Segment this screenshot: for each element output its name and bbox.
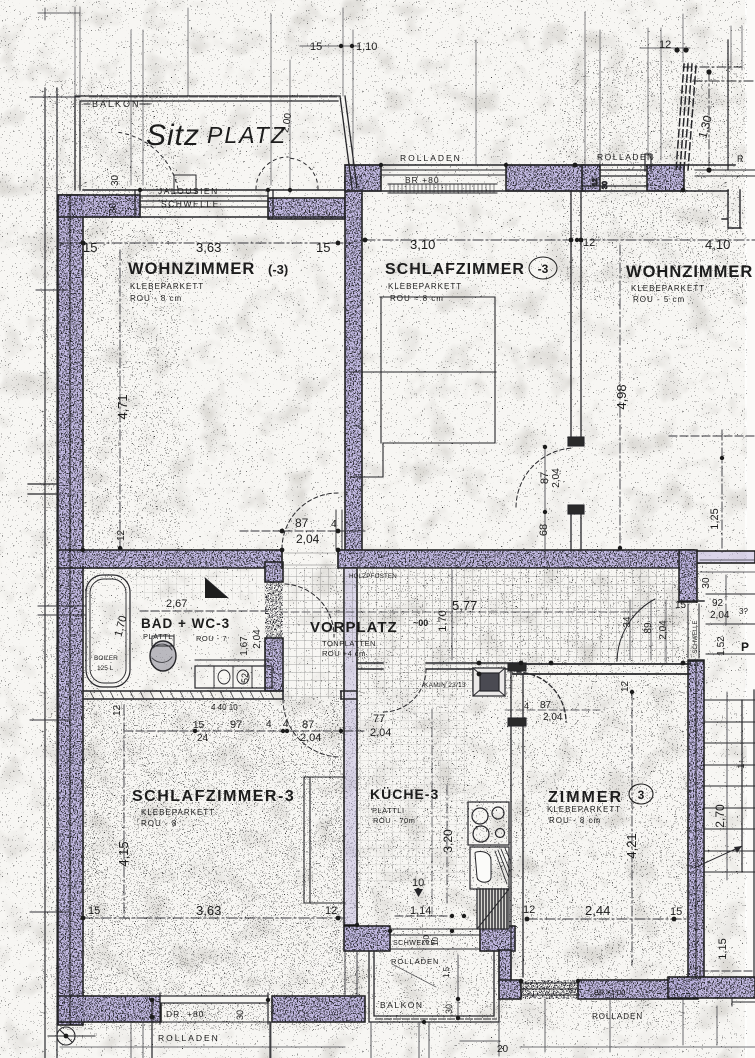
svg-text:3: 3: [638, 788, 645, 802]
svg-text:4,10: 4,10: [705, 237, 730, 252]
svg-text:30: 30: [602, 181, 609, 189]
svg-text:SCHLAFZIMMER-3: SCHLAFZIMMER-3: [132, 788, 295, 805]
svg-text:4,71: 4,71: [115, 394, 130, 419]
svg-text:ROU - 5 cm: ROU - 5 cm: [633, 295, 685, 304]
svg-text:PLATTLI: PLATTLI: [372, 806, 405, 815]
svg-text:30: 30: [701, 577, 712, 589]
svg-text:ROU - 7: ROU - 7: [196, 634, 227, 643]
svg-text:1,52: 1,52: [716, 636, 727, 656]
svg-text:KAMIN 23/13: KAMIN 23/13: [424, 682, 466, 689]
svg-text:ROLLADEN: ROLLADEN: [592, 1012, 643, 1021]
svg-text:(-3): (-3): [268, 262, 288, 277]
svg-text:BR +1,00: BR +1,00: [594, 988, 625, 997]
svg-text:3?: 3?: [739, 607, 748, 616]
svg-text:1,10: 1,10: [356, 41, 377, 53]
svg-text:VORPLATZ: VORPLATZ: [310, 619, 398, 636]
svg-text:12: 12: [620, 680, 631, 692]
svg-text:SCHWELLE: SCHWELLE: [693, 620, 699, 653]
svg-text:12: 12: [592, 178, 599, 186]
svg-text:3,10: 3,10: [410, 237, 435, 252]
svg-text:4: 4: [283, 719, 289, 730]
svg-text:KLEBEPARKETT: KLEBEPARKETT: [547, 805, 621, 814]
svg-text:5,77: 5,77: [452, 598, 477, 613]
svg-text:KLEBEPARKETT: KLEBEPARKETT: [631, 284, 705, 293]
svg-text:4,15: 4,15: [116, 841, 131, 866]
svg-text:BR +80: BR +80: [405, 175, 440, 185]
svg-text:30: 30: [422, 935, 431, 944]
svg-text:ROLLADEN: ROLLADEN: [400, 153, 462, 163]
svg-text:12: 12: [523, 904, 535, 916]
svg-text:2,04: 2,04: [710, 610, 730, 621]
svg-text:12: 12: [659, 39, 671, 51]
svg-text:ROU - 8 cm: ROU - 8 cm: [549, 816, 601, 825]
svg-text:KLEBEPARKETT: KLEBEPARKETT: [130, 282, 204, 291]
svg-text:2,04: 2,04: [551, 468, 562, 488]
svg-text:ZIMMER: ZIMMER: [548, 789, 623, 806]
svg-text:2,04: 2,04: [300, 732, 321, 744]
svg-text:2,04: 2,04: [543, 712, 563, 723]
svg-text:2,04: 2,04: [370, 727, 391, 739]
svg-text:52: 52: [240, 673, 250, 683]
svg-text:R: R: [737, 154, 744, 164]
svg-text:1↑: 1↑: [736, 759, 746, 769]
svg-text:BAD + WC-3: BAD + WC-3: [141, 616, 230, 631]
svg-text:4: 4: [524, 701, 529, 711]
svg-text:Sitz: Sitz: [146, 119, 200, 152]
svg-text:SCHLAFZIMMER: SCHLAFZIMMER: [385, 261, 525, 278]
svg-text:12: 12: [325, 905, 337, 917]
svg-text:12: 12: [583, 237, 595, 249]
svg-text:ROU - 70m: ROU - 70m: [373, 816, 415, 825]
svg-text:3,20: 3,20: [441, 829, 455, 853]
svg-text:10: 10: [431, 937, 440, 946]
svg-text:68: 68: [538, 524, 550, 536]
svg-text:125 L: 125 L: [97, 665, 114, 672]
svg-text:10: 10: [412, 877, 424, 889]
svg-text:15: 15: [670, 906, 682, 918]
svg-text:ROLLADEN: ROLLADEN: [597, 152, 655, 162]
svg-text:P: P: [741, 640, 749, 654]
svg-text:2,70: 2,70: [713, 804, 727, 828]
svg-text:ROU ≈ 8 cm: ROU ≈ 8 cm: [390, 294, 444, 303]
svg-text:PLATZ: PLATZ: [207, 122, 287, 148]
svg-text:HOLZPFOSTEN: HOLZPFOSTEN: [349, 573, 397, 580]
svg-text:~00: ~00: [413, 618, 428, 628]
svg-text:30: 30: [235, 1010, 245, 1020]
svg-text:2,67: 2,67: [166, 598, 187, 610]
svg-text:87: 87: [540, 700, 552, 711]
svg-text:34: 34: [622, 616, 633, 628]
svg-text:-3: -3: [538, 262, 549, 276]
svg-text:87: 87: [539, 472, 551, 484]
svg-text:2,04: 2,04: [658, 620, 669, 640]
svg-text:3,63: 3,63: [196, 903, 221, 918]
svg-text:92: 92: [712, 598, 724, 609]
svg-text:ROLLADEN: ROLLADEN: [158, 1033, 220, 1043]
svg-text:4: 4: [266, 719, 272, 730]
svg-text:JALOUSIEN: JALOUSIEN: [158, 186, 219, 196]
svg-text:BOILER: BOILER: [94, 655, 118, 662]
svg-text:KLEBEPARKETT: KLEBEPARKETT: [141, 808, 215, 817]
svg-text:2,44: 2,44: [585, 903, 610, 918]
svg-text:4,21: 4,21: [624, 833, 639, 858]
svg-text:15: 15: [675, 600, 687, 611]
svg-text:15: 15: [83, 240, 97, 255]
svg-text:PLATTLI: PLATTLI: [143, 632, 176, 641]
svg-text:ROU - 8 cm: ROU - 8 cm: [130, 294, 182, 303]
svg-text:KÜCHE-3: KÜCHE-3: [370, 786, 439, 802]
svg-text:24: 24: [197, 733, 209, 744]
svg-text:20: 20: [497, 1044, 509, 1055]
svg-text:30: 30: [110, 174, 121, 186]
svg-text:TONPLATTEN: TONPLATTEN: [322, 639, 376, 648]
svg-text:2,04: 2,04: [252, 629, 263, 649]
svg-text:15: 15: [316, 240, 330, 255]
svg-text:BALKON: BALKON: [380, 1000, 424, 1010]
svg-text:BALKON: BALKON: [92, 99, 141, 109]
svg-text:DR. +80: DR. +80: [166, 1009, 204, 1019]
svg-text:1,70: 1,70: [437, 610, 449, 631]
svg-text:4,98: 4,98: [614, 384, 629, 409]
svg-text:89: 89: [643, 622, 654, 634]
svg-text:ROLLADEN: ROLLADEN: [391, 957, 439, 966]
svg-text:KLEBEPARKETT: KLEBEPARKETT: [388, 282, 462, 291]
svg-text:97: 97: [230, 719, 242, 731]
svg-text:15: 15: [88, 905, 100, 917]
svg-text:1,67: 1,67: [239, 636, 250, 656]
svg-text:1,5: 1,5: [442, 966, 451, 978]
svg-text:87: 87: [302, 719, 314, 731]
svg-text:4 40 10: 4 40 10: [211, 703, 238, 712]
svg-text:2,04: 2,04: [296, 532, 320, 546]
svg-text:30: 30: [444, 1004, 454, 1014]
svg-text:4: 4: [331, 519, 337, 530]
svg-text:3,63: 3,63: [196, 240, 221, 255]
svg-text:87: 87: [295, 516, 309, 530]
svg-text:1,25: 1,25: [709, 508, 721, 529]
svg-text:SCHWELLE: SCHWELLE: [161, 199, 220, 209]
svg-text:WOHNZIMMER: WOHNZIMMER: [626, 263, 753, 281]
svg-text:ROU - 8: ROU - 8: [141, 819, 177, 828]
svg-text:30: 30: [108, 202, 119, 214]
svg-text:1,14: 1,14: [410, 905, 431, 917]
svg-text:12: 12: [116, 529, 127, 541]
svg-text:WOHNZIMMER: WOHNZIMMER: [128, 260, 255, 278]
svg-text:12: 12: [112, 704, 123, 716]
svg-text:ROU +4 cm: ROU +4 cm: [322, 649, 366, 658]
svg-text:1,15: 1,15: [717, 938, 729, 959]
svg-text:15: 15: [310, 41, 322, 53]
svg-text:77: 77: [373, 713, 385, 725]
svg-text:15: 15: [193, 720, 205, 731]
